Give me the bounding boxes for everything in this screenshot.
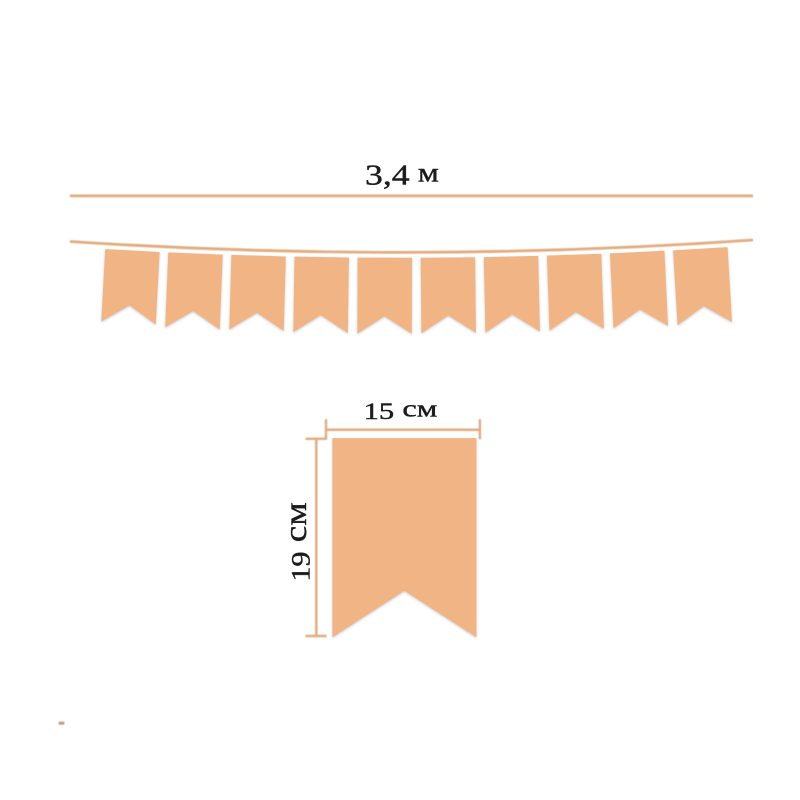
svg-text:19 см: 19 см	[278, 502, 316, 581]
svg-text:3,4 м: 3,4 м	[365, 157, 439, 192]
svg-text:15 см: 15 см	[364, 395, 438, 424]
